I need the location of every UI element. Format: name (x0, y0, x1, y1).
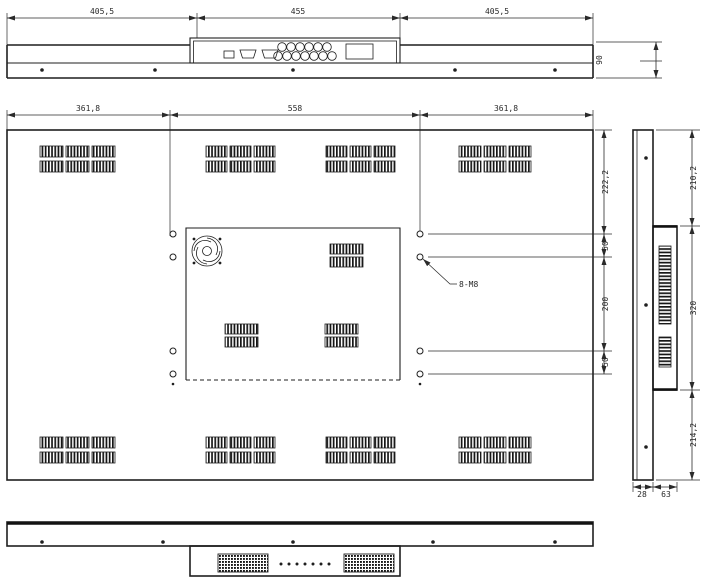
top-view-width-dimensions: 405,5 455 405,5 (7, 7, 593, 45)
dim-top-left: 405,5 (90, 7, 114, 16)
rear-view: 361,8 558 361,8 (7, 104, 612, 480)
side-depth-dimensions: 28 63 (633, 482, 677, 499)
bnc-connector-cluster (274, 43, 337, 61)
module-slot (346, 44, 373, 59)
top-view-body (7, 45, 593, 78)
dim-side-v-top: 210,2 (689, 166, 698, 190)
dim-rear-v-gap-bottom: 50 (601, 357, 610, 367)
screw-dot (553, 540, 557, 544)
speaker-grille (344, 554, 394, 572)
mount-holes-label: 8-M8 (459, 280, 478, 289)
dim-rear-right: 361,8 (494, 104, 518, 113)
screw-dot (153, 68, 157, 72)
dim-depth-front: 28 (637, 490, 647, 499)
side-vent-grille (659, 337, 671, 367)
speaker-grille (218, 554, 268, 572)
dim-top-center: 455 (291, 7, 306, 16)
dim-rear-center: 558 (288, 104, 303, 113)
speaker-enclosure (190, 546, 400, 576)
fan-icon (192, 236, 222, 266)
technical-drawing-svg: 405,5 455 405,5 (0, 0, 706, 584)
screw-dot (291, 68, 295, 72)
screw-dot (40, 68, 44, 72)
screw-dot (40, 540, 44, 544)
electronics-box (186, 228, 400, 380)
dim-top-depth: 90 (595, 55, 604, 65)
dim-top-right: 405,5 (485, 7, 509, 16)
dim-rear-v-top: 222,2 (601, 170, 610, 194)
dim-depth-back: 63 (661, 490, 671, 499)
dsub-connector-icon (240, 50, 256, 58)
mechanical-drawing-page: 405,5 455 405,5 (0, 0, 706, 584)
screw-dot (644, 156, 648, 160)
button-dots (280, 563, 331, 566)
dim-side-v-bottom: 214,2 (689, 423, 698, 447)
connector-panel (190, 38, 400, 63)
side-view-body (633, 130, 677, 480)
screw-dot (644, 445, 648, 449)
power-connector (224, 51, 234, 58)
screw-dot (161, 540, 165, 544)
dsub-connector-icon (262, 50, 278, 58)
screw-dot (644, 303, 648, 307)
bottom-bar (7, 522, 593, 546)
dim-side-v-mid: 320 (689, 301, 698, 316)
vesa-mount-holes (170, 231, 423, 385)
screw-dot (453, 68, 457, 72)
mount-holes-callout: 8-M8 (423, 259, 478, 289)
screw-dot (291, 540, 295, 544)
dim-rear-v-gap-top: 50 (601, 241, 610, 251)
top-view-depth-dimension: 90 (595, 42, 662, 78)
side-view: 210,2 320 214,2 28 63 (633, 130, 700, 499)
box-vent-grilles (225, 244, 363, 347)
bottom-view (7, 522, 593, 576)
top-view: 405,5 455 405,5 (7, 7, 662, 78)
vent-grilles-top (40, 146, 531, 172)
screw-dot (431, 540, 435, 544)
vent-grilles-bottom (40, 437, 531, 463)
dim-rear-left: 361,8 (76, 104, 100, 113)
side-vent-grille (659, 246, 671, 324)
dim-rear-v-span: 200 (601, 297, 610, 312)
rear-panel-outline (7, 130, 593, 480)
screw-dot (553, 68, 557, 72)
